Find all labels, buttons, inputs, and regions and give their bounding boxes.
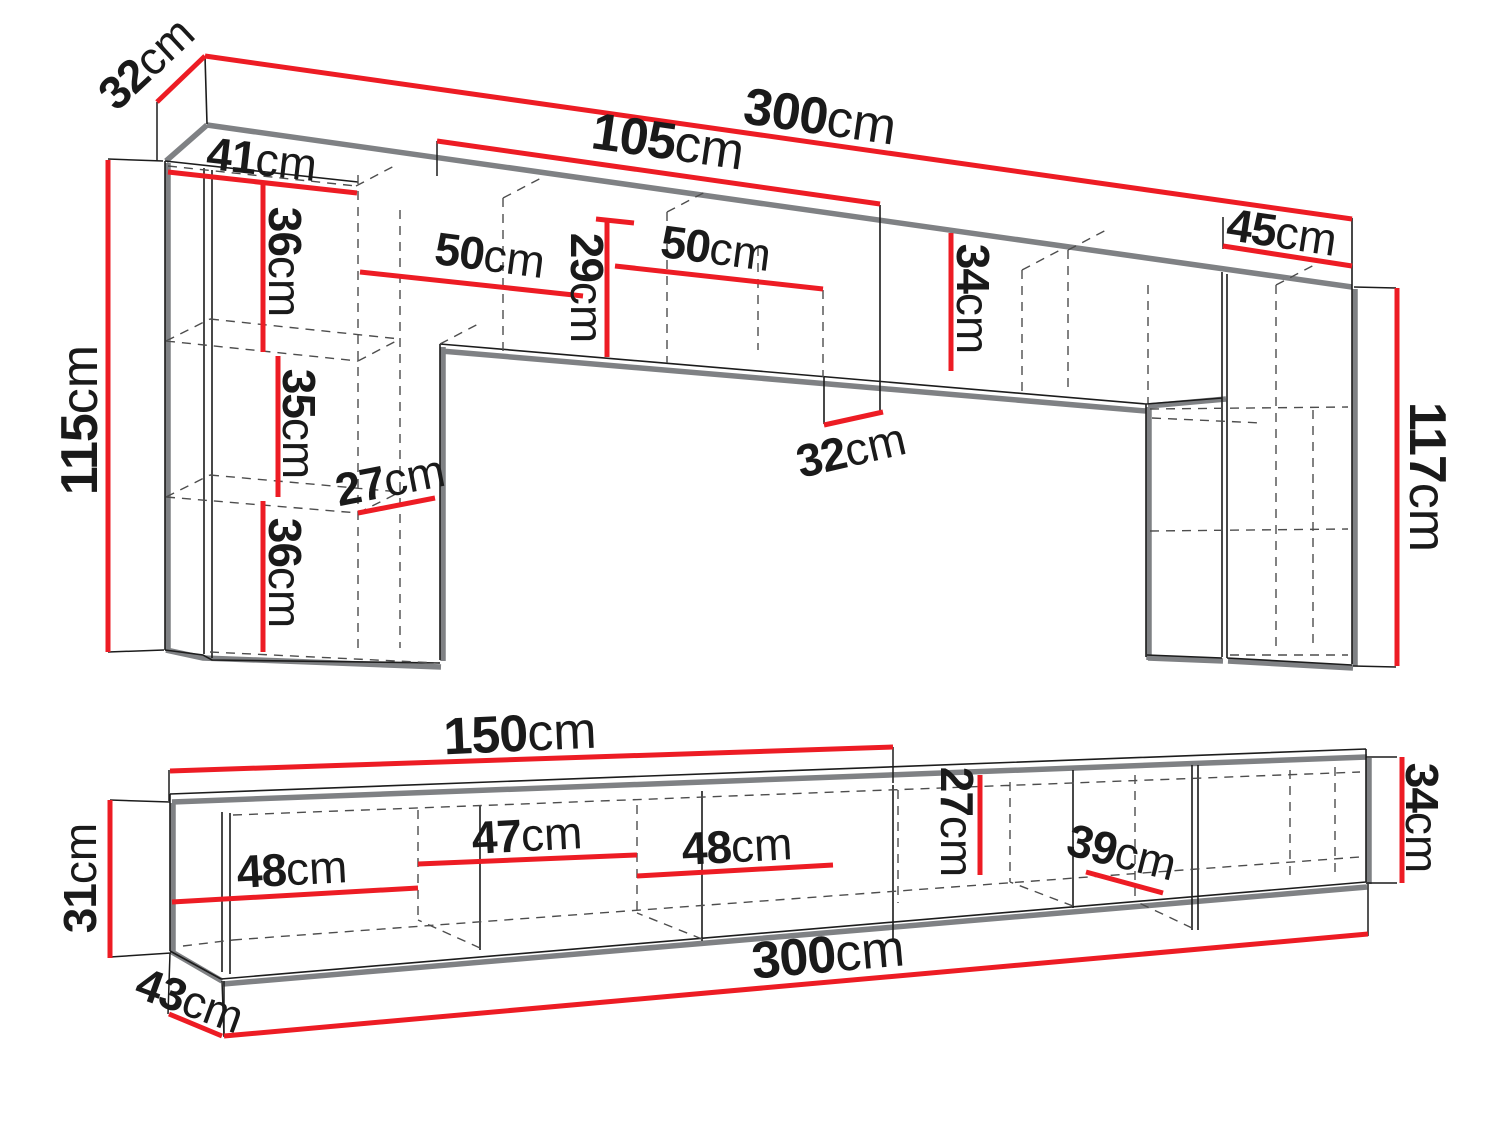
dimension-extension-line [1353,666,1396,667]
dimension-label-35cm: 35cm [273,369,325,480]
dimension-label-48cm: 48cm [235,840,348,898]
dimension-label-36cm: 36cm [259,207,311,318]
dimension-label-36cm: 36cm [259,518,311,629]
dimension-label-29cm: 29cm [561,233,613,344]
dimension-label-27cm: 27cm [931,767,983,878]
diagram-svg: 32cm300cm105cm41cm36cm50cm29cm50cm34cm32… [0,0,1500,1125]
furniture-dimension-diagram: 32cm300cm105cm41cm36cm50cm29cm50cm34cm32… [0,0,1500,1125]
dimension-label-31cm: 31cm [54,823,106,934]
dimension-label-34cm: 34cm [947,244,999,355]
dimension-label-150cm: 150cm [442,702,597,767]
dimension-label-34cm: 34cm [1396,763,1448,874]
dimension-label-48cm: 48cm [680,817,793,875]
dimension-label-47cm: 47cm [470,806,583,864]
dimension-label-115cm: 115cm [51,345,109,495]
dimension-label-117cm: 117cm [1398,402,1456,552]
dimension-extension-line [1354,287,1396,288]
